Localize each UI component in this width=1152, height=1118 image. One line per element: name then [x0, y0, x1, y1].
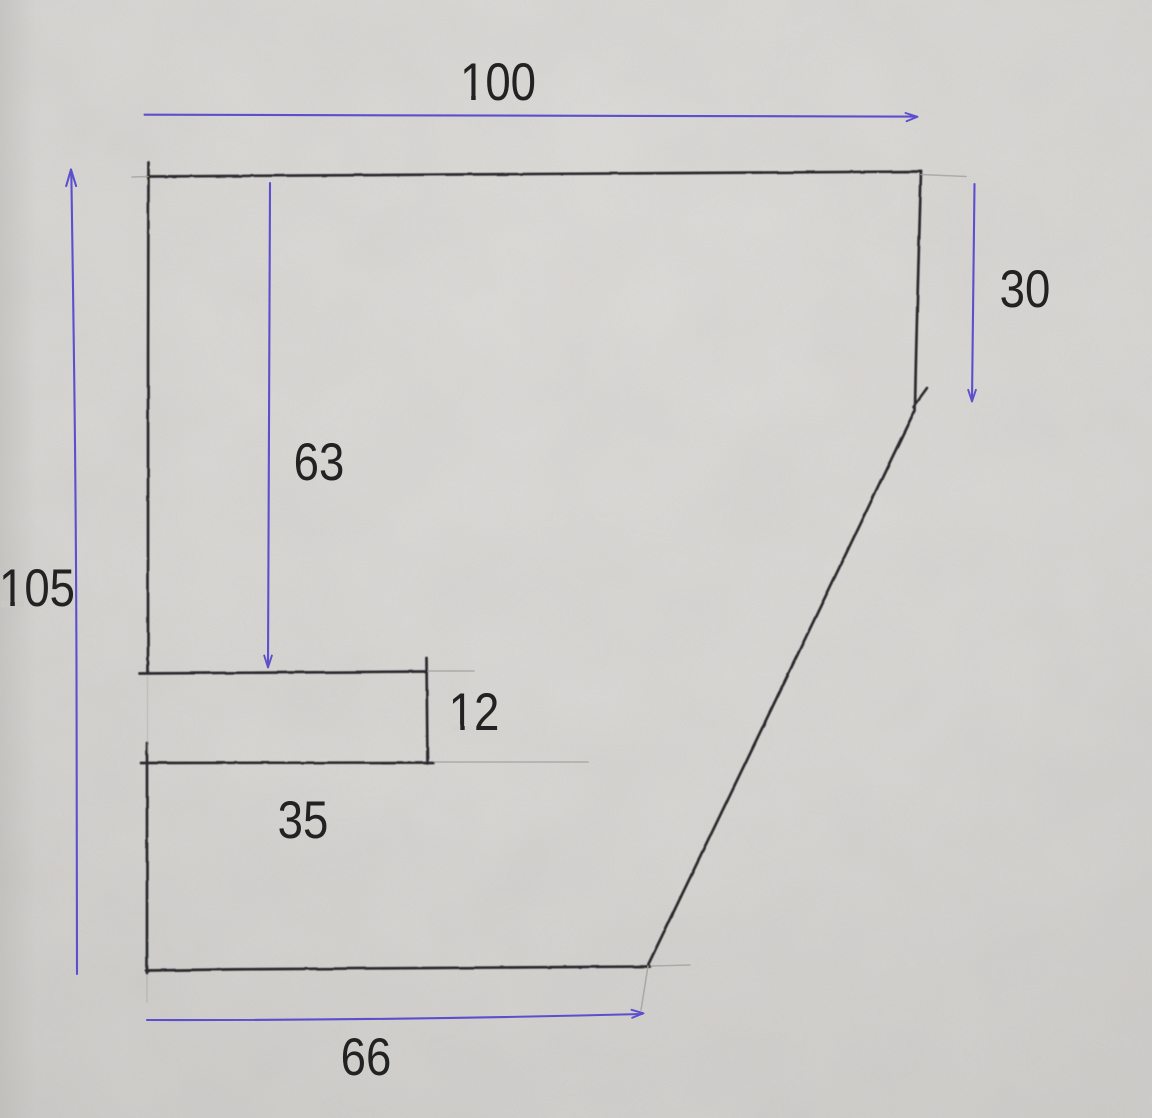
- svg-text:66: 66: [341, 1028, 392, 1087]
- svg-text:105: 105: [0, 559, 75, 618]
- svg-text:63: 63: [294, 433, 345, 492]
- svg-text:12: 12: [449, 683, 500, 742]
- svg-text:35: 35: [278, 791, 329, 850]
- svg-text:30: 30: [1000, 260, 1051, 319]
- svg-text:100: 100: [460, 53, 536, 112]
